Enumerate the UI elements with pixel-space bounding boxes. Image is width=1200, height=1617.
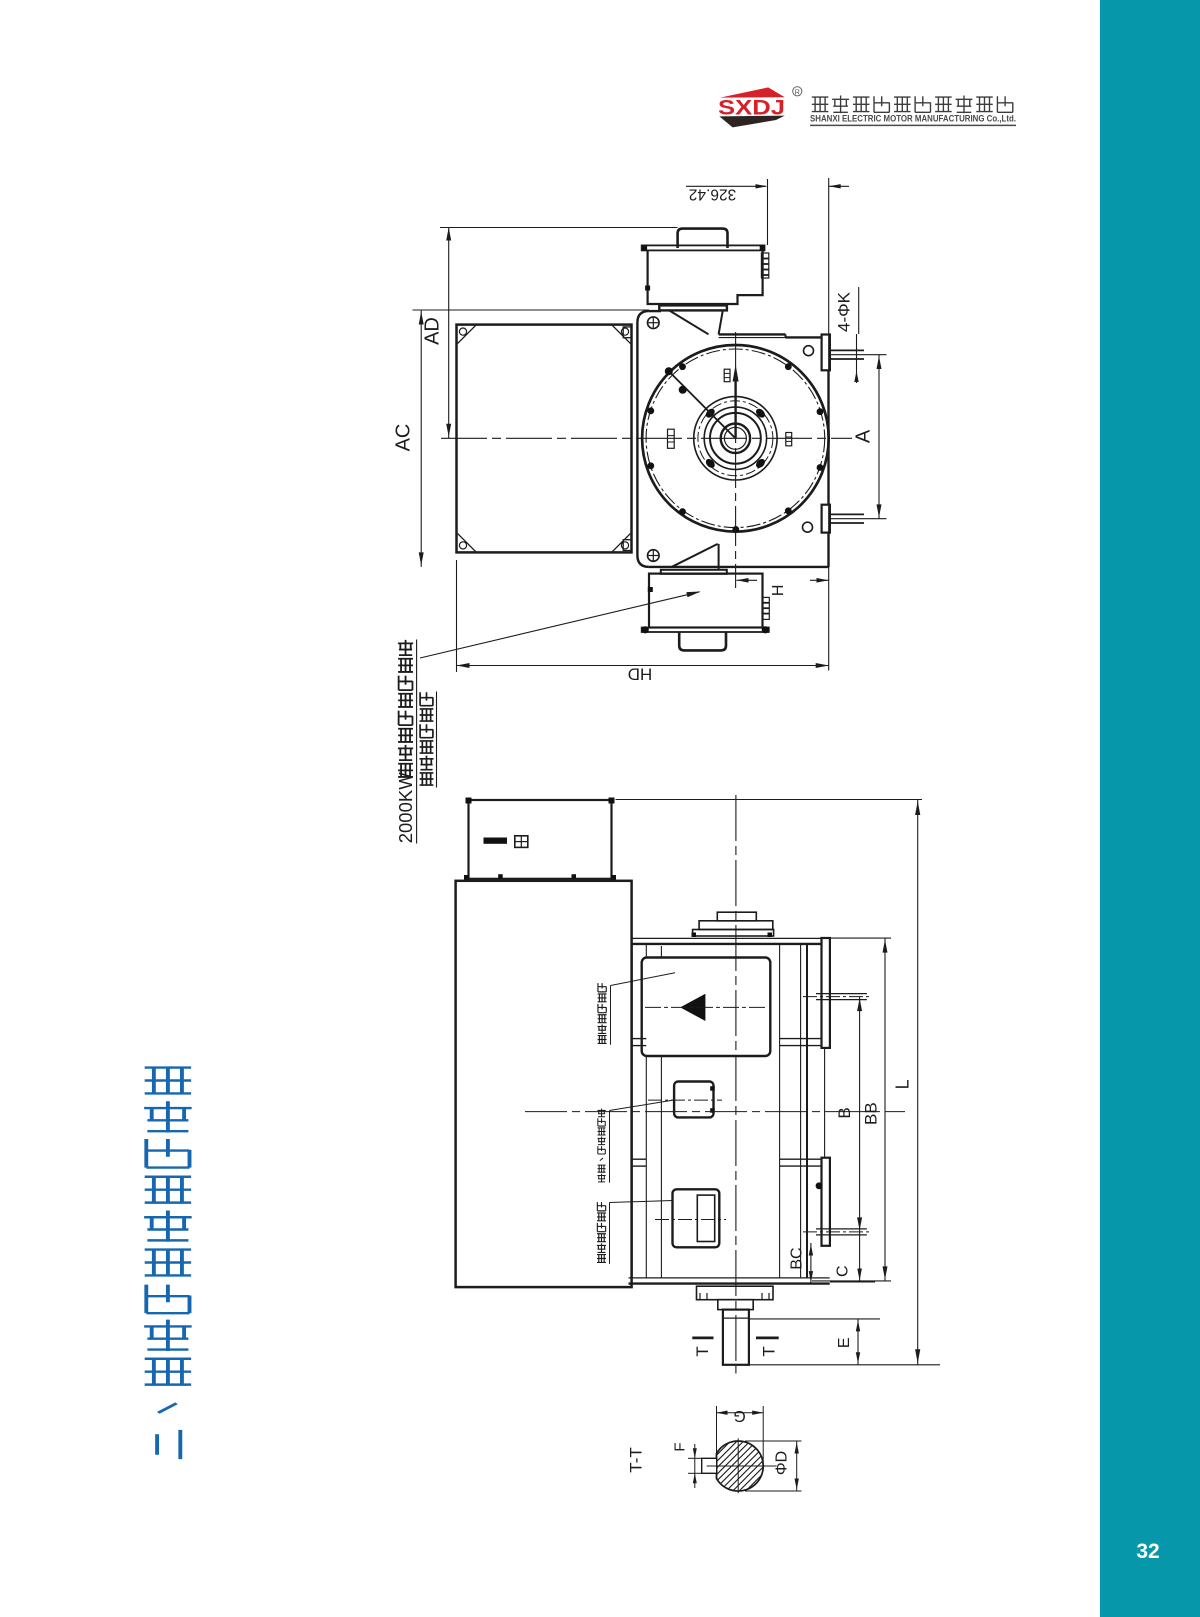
svg-text:E: E	[836, 1337, 853, 1348]
svg-text:HD: HD	[628, 665, 653, 684]
svg-text:BC: BC	[789, 1247, 806, 1269]
svg-text:T: T	[760, 1346, 779, 1356]
svg-text:C: C	[835, 1265, 852, 1277]
svg-text:AD: AD	[422, 317, 444, 345]
svg-text:2000KW: 2000KW	[395, 772, 416, 843]
svg-text:AC: AC	[393, 424, 415, 452]
svg-text:T: T	[693, 1346, 712, 1356]
svg-text:4-ΦK: 4-ΦK	[835, 291, 854, 332]
svg-text:BB: BB	[862, 1102, 881, 1125]
svg-text:ΦD: ΦD	[774, 1451, 791, 1475]
svg-text:F: F	[672, 1442, 689, 1451]
svg-text:SXDJ: SXDJ	[718, 97, 785, 120]
svg-text:326.42: 326.42	[689, 186, 736, 203]
svg-text:A: A	[853, 429, 875, 443]
svg-text:H: H	[770, 585, 787, 597]
svg-text:B: B	[835, 1107, 854, 1118]
svg-text:R: R	[795, 89, 800, 96]
svg-text:T-T: T-T	[627, 1447, 646, 1473]
svg-text:32: 32	[1136, 1540, 1159, 1563]
svg-text:L: L	[893, 1079, 913, 1089]
svg-text:G: G	[733, 1407, 745, 1424]
svg-text:SHANXI ELECTRIC MOTOR MANUFACT: SHANXI ELECTRIC MOTOR MANUFACTURING Co.,…	[810, 114, 1016, 124]
